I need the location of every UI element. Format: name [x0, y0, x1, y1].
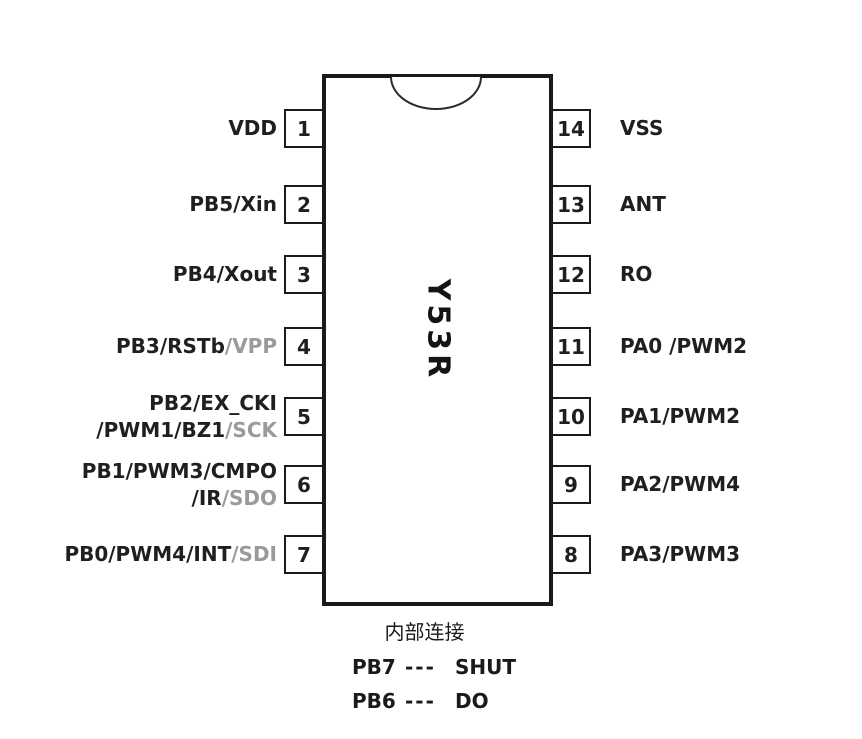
pin-number: 12: [557, 263, 585, 287]
pin-label-7: PB0/PWM4/INT/SDI: [64, 541, 277, 568]
pin-function: PB3/RSTb: [116, 334, 225, 358]
chip-notch-icon: [390, 77, 482, 110]
pin-label-line: PA0 /PWM2: [620, 333, 747, 360]
pin-number: 2: [297, 193, 311, 217]
pin-number: 8: [564, 543, 578, 567]
pin-label-4: PB3/RSTb/VPP: [116, 333, 277, 360]
pin-number-box-8: 8: [551, 535, 591, 574]
pin-function: PA0 /PWM2: [620, 334, 747, 358]
pin-number-box-14: 14: [551, 109, 591, 148]
internal-connections-title: 内部连接: [309, 616, 540, 645]
pin-function: VDD: [228, 116, 277, 140]
pin-number-box-3: 3: [284, 255, 324, 294]
internal-connection-row: PB7---SHUT: [352, 655, 516, 679]
pin-label-line: PB5/Xin: [189, 191, 277, 218]
pin-number: 3: [297, 263, 311, 287]
pin-label-line: RO: [620, 261, 652, 288]
pin-function-alt: /SDI: [231, 542, 277, 566]
pin-number-box-5: 5: [284, 397, 324, 436]
pin-number-box-13: 13: [551, 185, 591, 224]
pin-number-box-11: 11: [551, 327, 591, 366]
pin-number: 6: [297, 473, 311, 497]
pin-number-box-10: 10: [551, 397, 591, 436]
pin-number: 7: [297, 543, 311, 567]
pin-function-alt: /SDO: [222, 486, 277, 510]
pin-number: 14: [557, 117, 585, 141]
pin-label-5: PB2/EX_CKI/PWM1/BZ1/SCK: [96, 390, 277, 444]
pin-label-9: PA2/PWM4: [620, 471, 740, 498]
pin-label-10: PA1/PWM2: [620, 403, 740, 430]
chip-body: Y53R: [322, 74, 553, 606]
internal-connection-dash: ---: [405, 689, 455, 713]
internal-connection-signal: SHUT: [455, 655, 516, 679]
internal-connection-dash: ---: [405, 655, 455, 679]
pin-label-line: ANT: [620, 191, 666, 218]
pin-label-14: VSS: [620, 115, 663, 142]
pin-function: ANT: [620, 192, 666, 216]
pin-number: 4: [297, 335, 311, 359]
pin-number: 9: [564, 473, 578, 497]
pin-number: 1: [297, 117, 311, 141]
pin-function: /IR: [192, 486, 222, 510]
pin-function-alt: /SCK: [225, 418, 277, 442]
pin-label-line: /PWM1/BZ1/SCK: [96, 417, 277, 444]
pin-number-box-12: 12: [551, 255, 591, 294]
pin-number-box-9: 9: [551, 465, 591, 504]
pin-label-line: PB4/Xout: [173, 261, 277, 288]
pin-label-6: PB1/PWM3/CMPO/IR/SDO: [82, 458, 277, 512]
internal-connection-row: PB6---DO: [352, 689, 489, 713]
pin-number-box-7: 7: [284, 535, 324, 574]
pin-label-line: PA3/PWM3: [620, 541, 740, 568]
pin-label-line: PB0/PWM4/INT/SDI: [64, 541, 277, 568]
pin-label-3: PB4/Xout: [173, 261, 277, 288]
pin-label-line: PB3/RSTb/VPP: [116, 333, 277, 360]
pin-number: 11: [557, 335, 585, 359]
pin-label-line: PA2/PWM4: [620, 471, 740, 498]
pin-label-2: PB5/Xin: [189, 191, 277, 218]
pin-label-line: PB2/EX_CKI: [96, 390, 277, 417]
chip-name: Y53R: [420, 279, 455, 382]
pin-number: 13: [557, 193, 585, 217]
pin-number: 10: [557, 405, 585, 429]
pin-function: PA1/PWM2: [620, 404, 740, 428]
pin-label-line: PA1/PWM2: [620, 403, 740, 430]
pin-function: PB4/Xout: [173, 262, 277, 286]
pin-label-line: /IR/SDO: [82, 485, 277, 512]
pin-function: /PWM1/BZ1: [96, 418, 225, 442]
pin-number: 5: [297, 405, 311, 429]
internal-connection-pin: PB6: [352, 689, 405, 713]
pin-number-box-6: 6: [284, 465, 324, 504]
pin-number-box-1: 1: [284, 109, 324, 148]
pin-label-8: PA3/PWM3: [620, 541, 740, 568]
pin-function: VSS: [620, 116, 663, 140]
pin-function: PB1/PWM3/CMPO: [82, 459, 277, 483]
pin-label-11: PA0 /PWM2: [620, 333, 747, 360]
pin-label-line: PB1/PWM3/CMPO: [82, 458, 277, 485]
pin-number-box-2: 2: [284, 185, 324, 224]
pin-function: PA3/PWM3: [620, 542, 740, 566]
pin-number-box-4: 4: [284, 327, 324, 366]
pinout-diagram: Y53R 1VDD2PB5/Xin3PB4/Xout4PB3/RSTb/VPP5…: [0, 0, 862, 739]
pin-label-line: VDD: [228, 115, 277, 142]
pin-function: PB2/EX_CKI: [149, 391, 277, 415]
pin-function-alt: /VPP: [225, 334, 277, 358]
pin-function: PB5/Xin: [189, 192, 277, 216]
pin-label-13: ANT: [620, 191, 666, 218]
pin-function: PA2/PWM4: [620, 472, 740, 496]
pin-function: PB0/PWM4/INT: [64, 542, 231, 566]
internal-connection-signal: DO: [455, 689, 489, 713]
pin-function: RO: [620, 262, 652, 286]
pin-label-1: VDD: [228, 115, 277, 142]
internal-connection-pin: PB7: [352, 655, 405, 679]
pin-label-line: VSS: [620, 115, 663, 142]
pin-label-12: RO: [620, 261, 652, 288]
